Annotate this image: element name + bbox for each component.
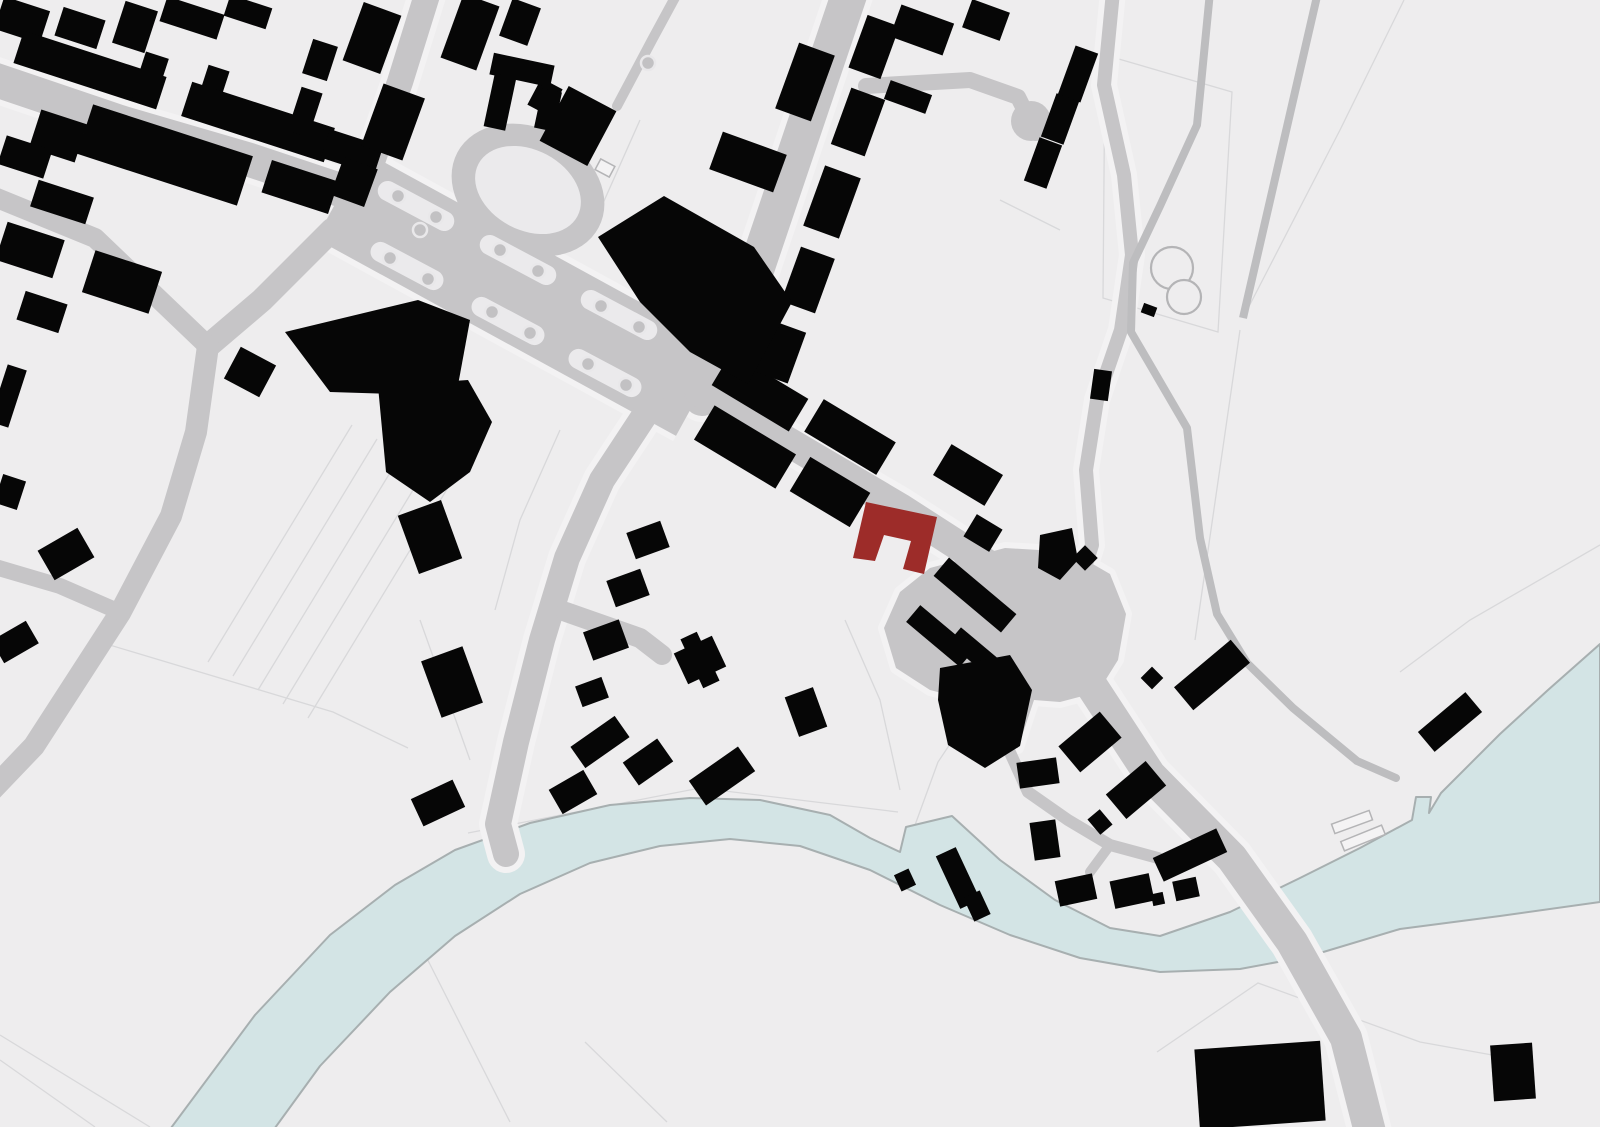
building [1211, 1103, 1226, 1118]
tree-icon [493, 243, 507, 257]
building [1490, 1043, 1536, 1102]
tree-icon [581, 357, 595, 371]
tree-icon [421, 272, 435, 286]
tree-icon [531, 264, 545, 278]
building [1151, 892, 1165, 906]
tree-icon [485, 305, 499, 319]
building [1016, 757, 1059, 788]
tree-icon [391, 189, 405, 203]
tree-icon [632, 320, 646, 334]
tree-icon [594, 299, 608, 313]
tree-icon [383, 251, 397, 265]
tree-icon [523, 326, 537, 340]
figure-ground-map [0, 0, 1600, 1127]
site-plan-figure [0, 0, 1600, 1127]
tree-icon [413, 223, 427, 237]
building [1029, 819, 1060, 860]
tree-icon [619, 378, 633, 392]
tank-icon [1167, 280, 1201, 314]
tree-icon [641, 56, 655, 70]
tree-icon [429, 210, 443, 224]
